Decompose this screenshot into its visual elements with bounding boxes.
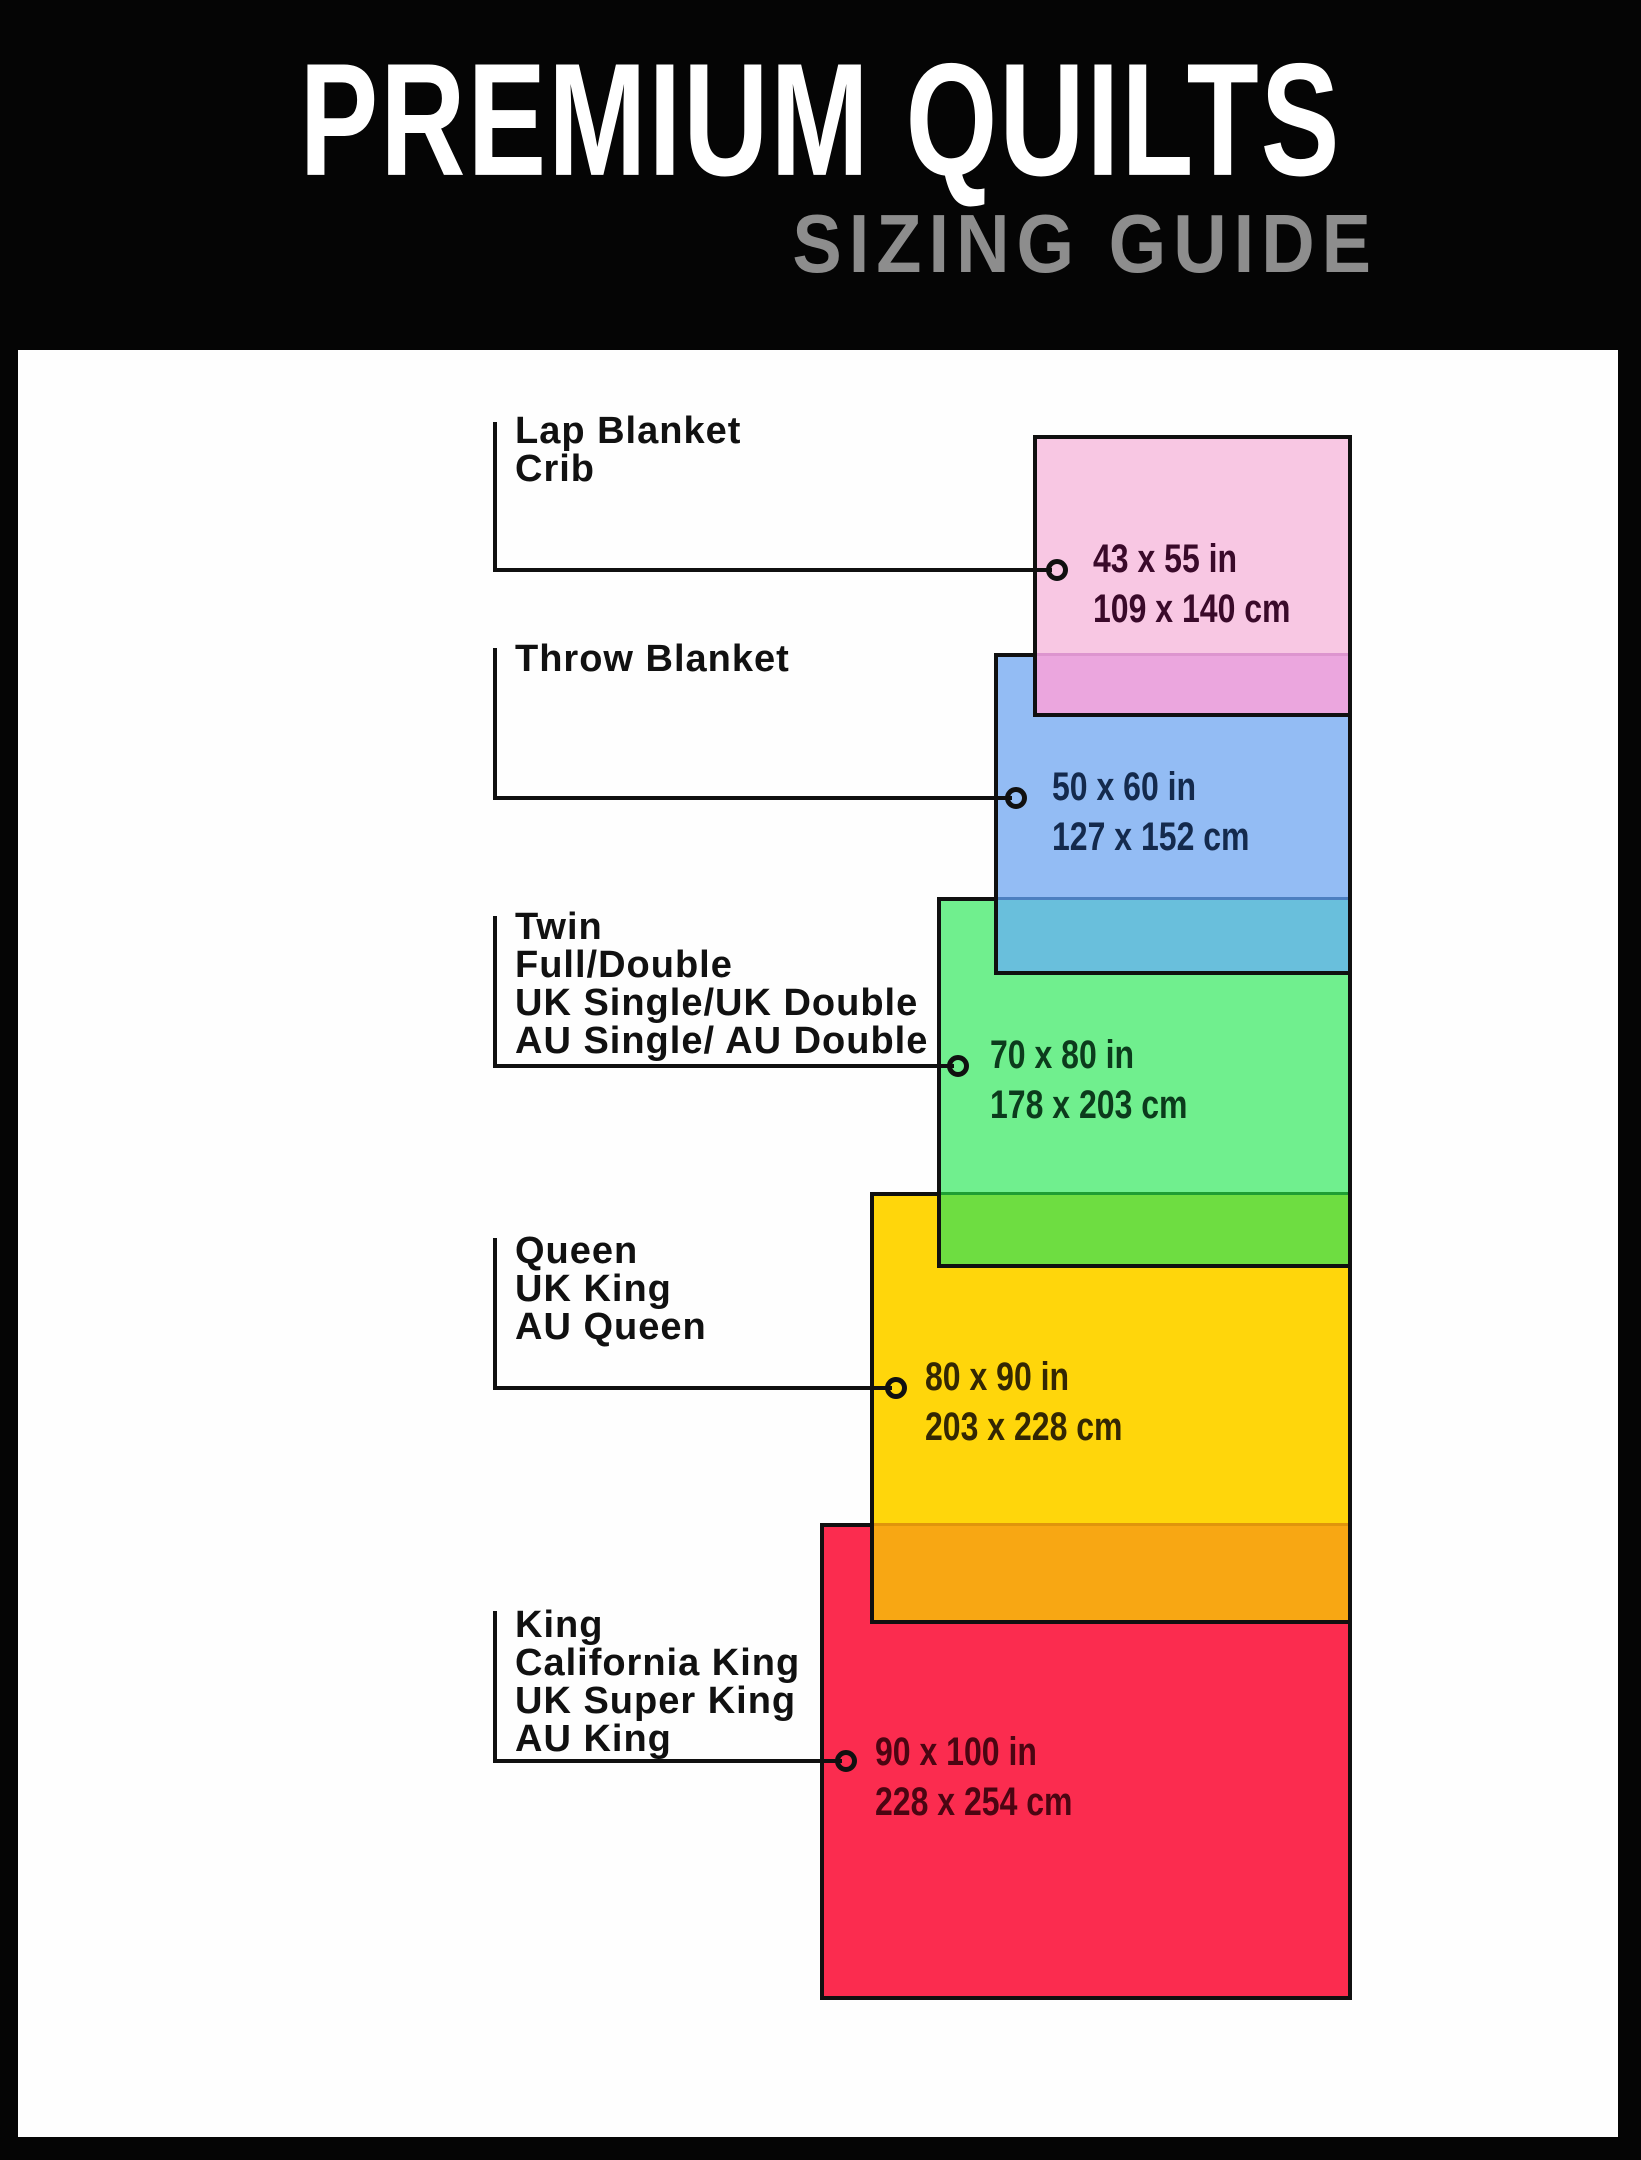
dims-inches: 80 x 90 in [925,1352,1123,1402]
connector-vline-queen [493,1238,497,1390]
overlap-lap-throw [1037,653,1348,713]
dims-inches: 90 x 100 in [875,1727,1073,1777]
connector-vline-king [493,1611,497,1763]
connector-hline-throw [493,796,1012,800]
content-panel [18,350,1618,2137]
label-line: Full/Double [515,946,928,984]
label-line: AU Single/ AU Double [515,1022,928,1060]
label-line: Queen [515,1232,707,1270]
dims-twin: 70 x 80 in 178 x 203 cm [990,1030,1188,1130]
connector-dot-icon [885,1377,907,1399]
label-line: Throw Blanket [515,640,790,678]
dims-king: 90 x 100 in 228 x 254 cm [875,1727,1073,1827]
label-queen: Queen UK King AU Queen [515,1232,707,1346]
label-line: AU King [515,1720,800,1758]
connector-dot-icon [835,1750,857,1772]
dims-cm: 178 x 203 cm [990,1080,1188,1130]
label-line: Twin [515,908,928,946]
connector-vline-twin [493,916,497,1068]
label-twin: Twin Full/Double UK Single/UK Double AU … [515,908,928,1060]
sizing-guide-page: PREMIUM QUILTS SIZING GUIDE Lap Blanket … [0,0,1641,2160]
connector-hline-twin [493,1064,954,1068]
connector-vline-lap [493,422,497,572]
header: PREMIUM QUILTS SIZING GUIDE [0,0,1641,350]
label-line: Crib [515,450,741,488]
label-line: King [515,1606,800,1644]
dims-inches: 70 x 80 in [990,1030,1188,1080]
connector-dot-icon [1046,559,1068,581]
dims-cm: 109 x 140 cm [1093,584,1291,634]
connector-hline-queen [493,1386,892,1390]
label-line: UK King [515,1270,707,1308]
label-line: California King [515,1644,800,1682]
connector-hline-lap [493,568,1052,572]
page-title: PREMIUM QUILTS [0,28,1641,213]
connector-dot-icon [947,1055,969,1077]
label-line: AU Queen [515,1308,707,1346]
dims-cm: 228 x 254 cm [875,1777,1073,1827]
overlap-queen-king [874,1523,1348,1620]
label-throw-blanket: Throw Blanket [515,640,790,678]
connector-dot-icon [1005,787,1027,809]
label-line: Lap Blanket [515,412,741,450]
label-line: UK Single/UK Double [515,984,928,1022]
dims-inches: 50 x 60 in [1052,762,1250,812]
dims-inches: 43 x 55 in [1093,534,1291,584]
label-line: UK Super King [515,1682,800,1720]
overlap-twin-queen [941,1192,1348,1264]
overlap-throw-twin [998,897,1348,971]
dims-queen: 80 x 90 in 203 x 228 cm [925,1352,1123,1452]
label-lap-blanket-crib: Lap Blanket Crib [515,412,741,488]
dims-throw-blanket: 50 x 60 in 127 x 152 cm [1052,762,1250,862]
dims-cm: 203 x 228 cm [925,1402,1123,1452]
connector-vline-throw [493,648,497,800]
label-king: King California King UK Super King AU Ki… [515,1606,800,1758]
dims-cm: 127 x 152 cm [1052,812,1250,862]
page-subtitle: SIZING GUIDE [792,196,1378,291]
dims-lap-blanket-crib: 43 x 55 in 109 x 140 cm [1093,534,1291,634]
